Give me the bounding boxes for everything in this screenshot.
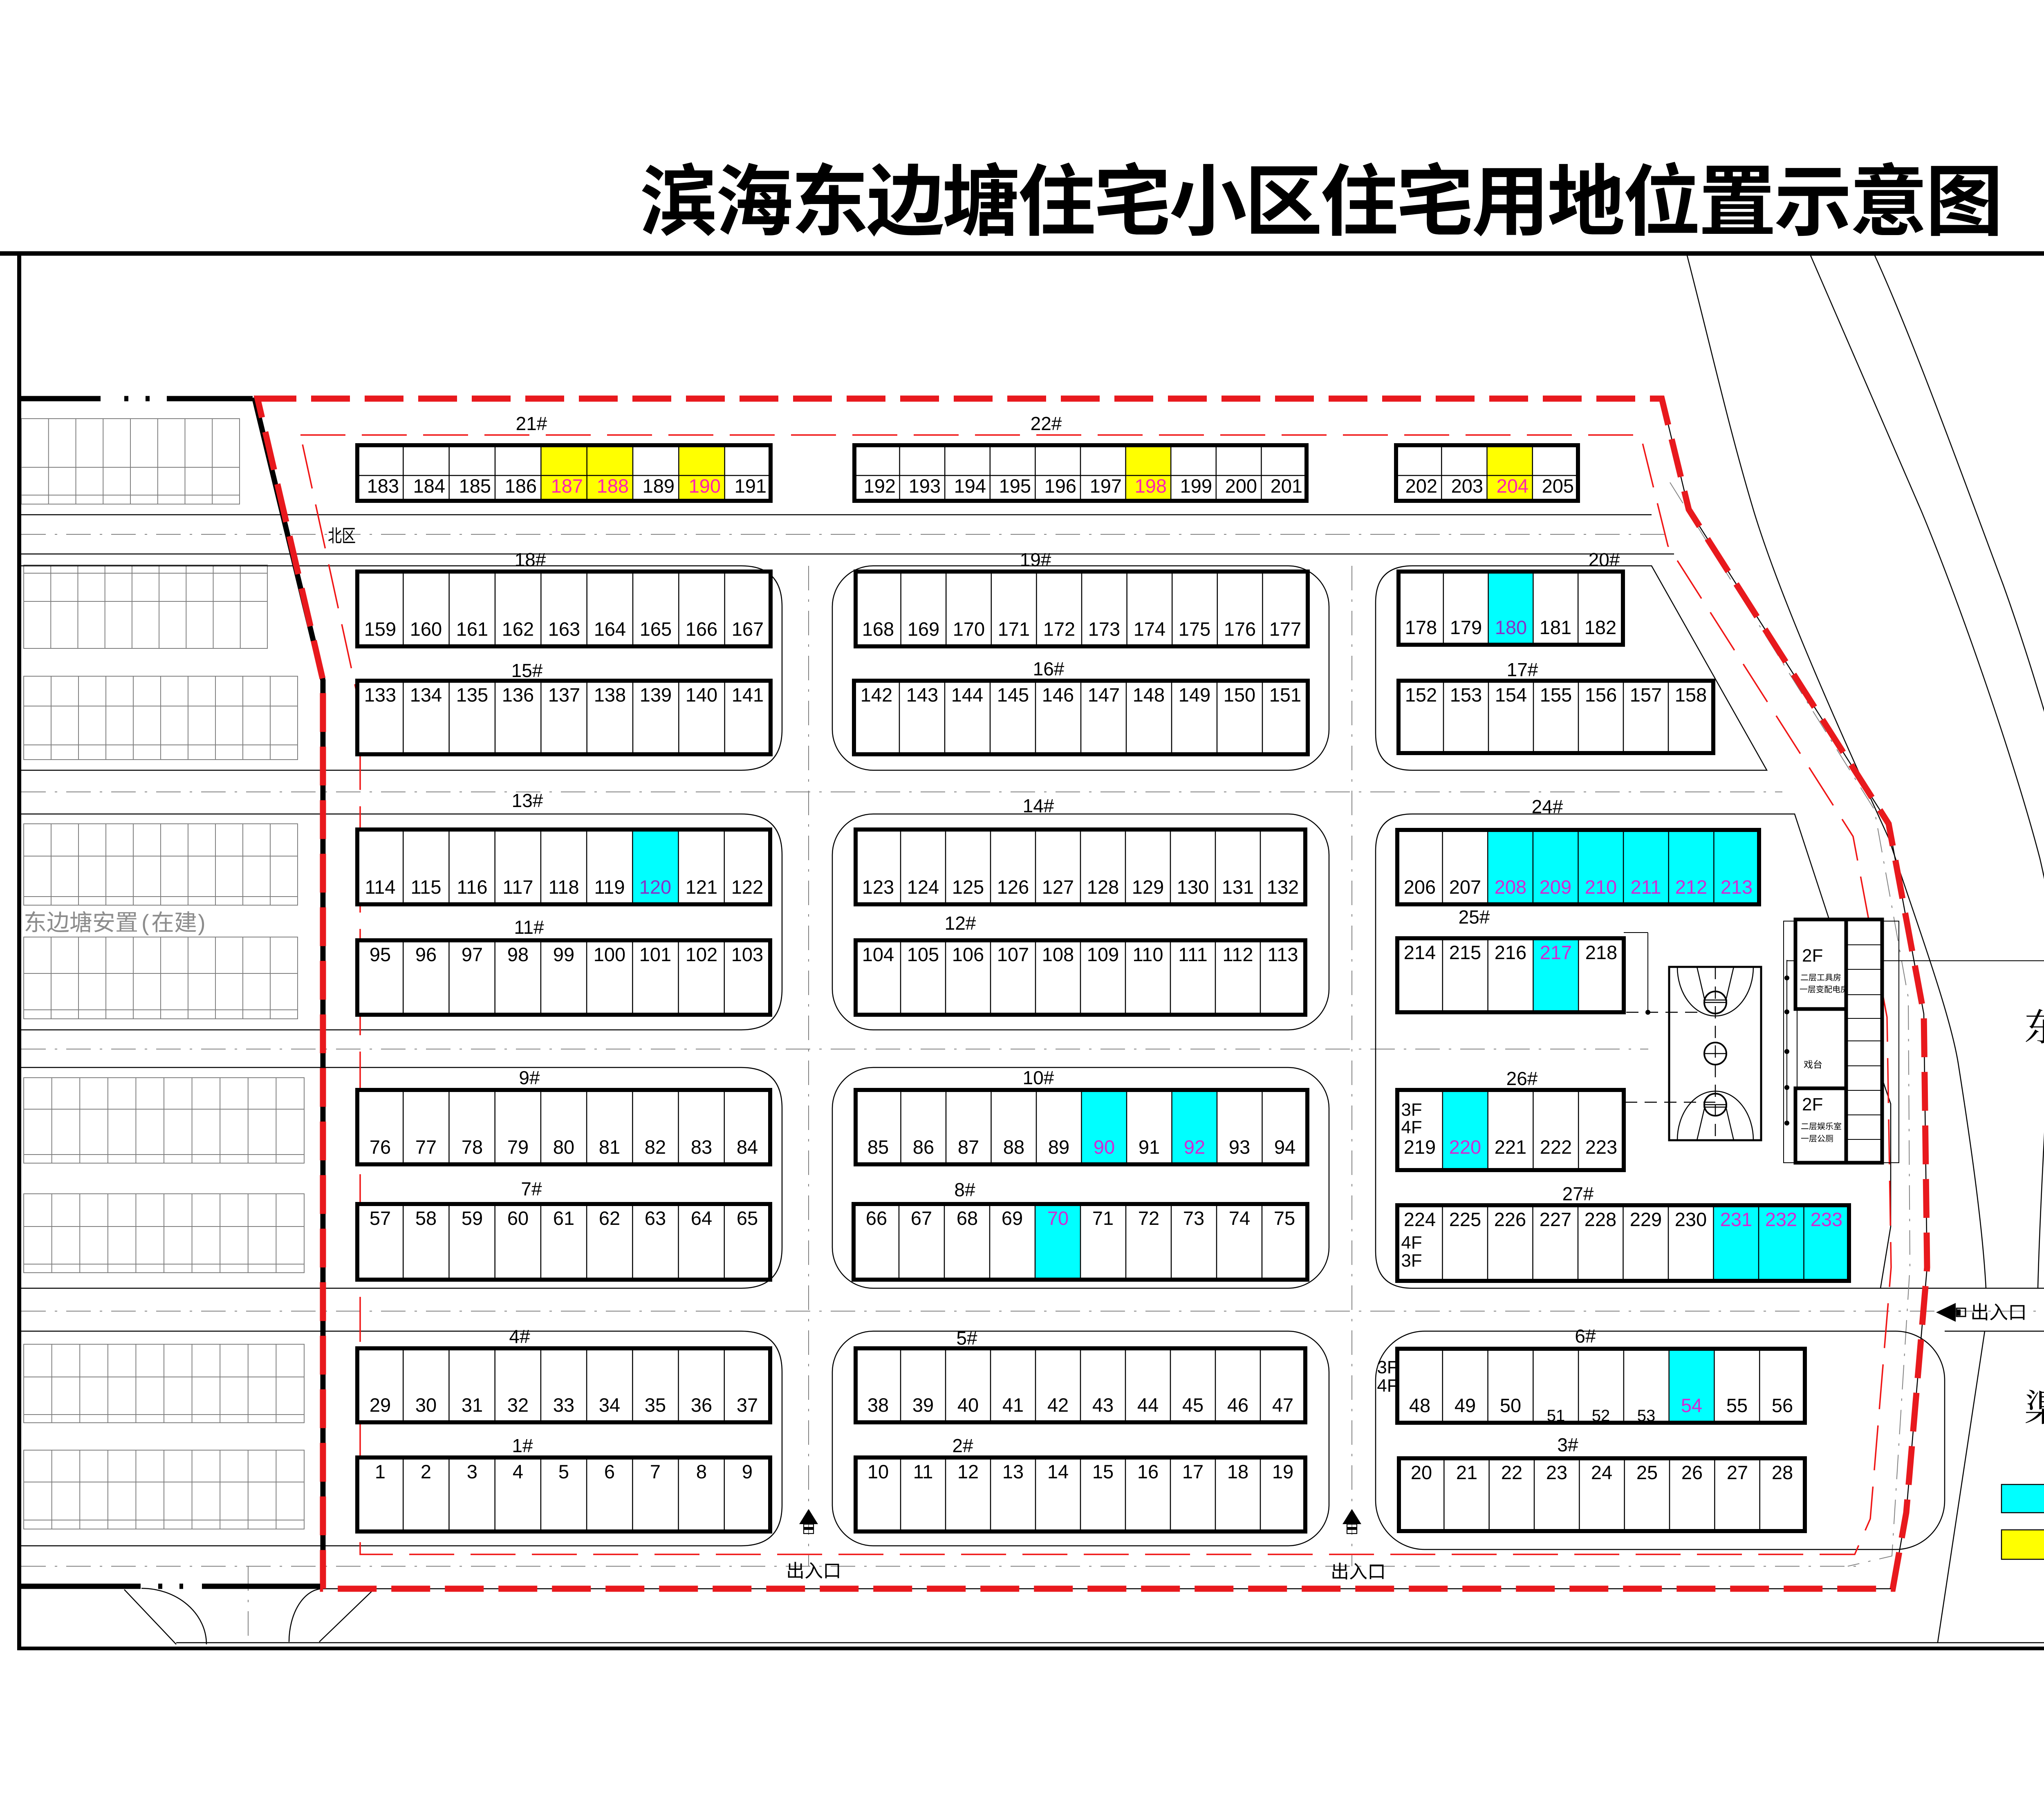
- svg-text:17: 17: [1182, 1461, 1204, 1482]
- svg-text:132: 132: [1267, 876, 1299, 898]
- svg-text:105: 105: [907, 944, 939, 965]
- svg-text:17#: 17#: [1507, 659, 1538, 680]
- svg-text:142: 142: [861, 684, 892, 706]
- svg-text:218: 218: [1585, 942, 1617, 963]
- svg-text:70: 70: [1047, 1207, 1069, 1229]
- svg-text:5: 5: [558, 1461, 569, 1482]
- svg-text:115: 115: [411, 876, 442, 898]
- svg-text:168: 168: [862, 618, 894, 640]
- svg-text:4: 4: [513, 1461, 523, 1482]
- svg-text:111: 111: [1178, 944, 1207, 965]
- svg-text:84: 84: [737, 1136, 758, 1158]
- svg-text:15#: 15#: [511, 660, 543, 681]
- svg-text:155: 155: [1540, 684, 1572, 706]
- svg-text:21: 21: [1456, 1462, 1477, 1483]
- svg-text:149: 149: [1179, 684, 1210, 706]
- svg-text:197: 197: [1090, 475, 1122, 497]
- svg-text:(: (: [141, 910, 149, 935]
- svg-text:180: 180: [1495, 617, 1527, 638]
- svg-text:16: 16: [1137, 1461, 1159, 1482]
- svg-text:88: 88: [1003, 1136, 1024, 1158]
- svg-text:165: 165: [640, 618, 672, 640]
- svg-text:62: 62: [599, 1207, 620, 1229]
- svg-text:204: 204: [1497, 475, 1529, 497]
- svg-text:167: 167: [732, 618, 764, 640]
- svg-text:26: 26: [1681, 1462, 1703, 1483]
- svg-text:213: 213: [1721, 876, 1753, 898]
- svg-text:8#: 8#: [954, 1179, 975, 1200]
- svg-text:219: 219: [1404, 1136, 1436, 1158]
- svg-text:87: 87: [958, 1136, 979, 1158]
- svg-text:145: 145: [997, 684, 1029, 706]
- svg-text:198: 198: [1135, 475, 1167, 497]
- svg-text:191: 191: [735, 475, 766, 497]
- svg-text:31: 31: [462, 1394, 483, 1416]
- svg-text:158: 158: [1675, 684, 1707, 706]
- svg-text:150: 150: [1224, 684, 1255, 706]
- svg-text:209: 209: [1540, 876, 1571, 898]
- svg-text:172: 172: [1043, 618, 1075, 640]
- svg-text:161: 161: [456, 618, 488, 640]
- svg-text:211: 211: [1631, 876, 1661, 898]
- svg-text:12#: 12#: [945, 913, 976, 934]
- svg-text:2F: 2F: [1802, 1094, 1823, 1114]
- svg-text:227: 227: [1540, 1209, 1571, 1230]
- svg-text:52: 52: [1592, 1407, 1610, 1425]
- svg-text:120: 120: [639, 876, 671, 898]
- svg-text:127: 127: [1042, 876, 1074, 898]
- svg-text:154: 154: [1495, 684, 1527, 706]
- svg-text:186: 186: [505, 475, 537, 497]
- svg-text:112: 112: [1223, 944, 1253, 965]
- svg-text:47: 47: [1272, 1394, 1293, 1416]
- svg-text:118: 118: [549, 876, 579, 898]
- svg-text:124: 124: [907, 876, 939, 898]
- svg-text:207: 207: [1449, 876, 1481, 898]
- svg-text:173: 173: [1088, 618, 1120, 640]
- svg-text:139: 139: [640, 684, 672, 706]
- svg-text:189: 189: [643, 475, 675, 497]
- svg-text:45: 45: [1182, 1394, 1204, 1416]
- svg-text:202: 202: [1405, 475, 1437, 497]
- svg-text:233: 233: [1811, 1209, 1842, 1230]
- svg-text:3: 3: [467, 1461, 477, 1482]
- svg-text:10#: 10#: [1023, 1067, 1054, 1088]
- svg-text:116: 116: [457, 876, 488, 898]
- svg-text:25#: 25#: [1459, 906, 1490, 928]
- svg-text:200: 200: [1225, 475, 1257, 497]
- svg-text:178: 178: [1405, 617, 1437, 638]
- svg-text:133: 133: [364, 684, 396, 706]
- svg-text:77: 77: [415, 1136, 437, 1158]
- svg-text:11#: 11#: [514, 917, 544, 938]
- svg-text:122: 122: [731, 876, 763, 898]
- svg-text:80: 80: [553, 1136, 574, 1158]
- svg-text:69: 69: [1002, 1207, 1023, 1229]
- svg-text:176: 176: [1224, 618, 1256, 640]
- svg-text:171: 171: [998, 618, 1030, 640]
- svg-text:75: 75: [1274, 1207, 1295, 1229]
- svg-text:19: 19: [1272, 1461, 1293, 1482]
- svg-text:107: 107: [997, 944, 1029, 965]
- svg-text:129: 129: [1132, 876, 1164, 898]
- svg-text:27: 27: [1727, 1462, 1748, 1483]
- svg-text:126: 126: [997, 876, 1029, 898]
- svg-text:46: 46: [1227, 1394, 1248, 1416]
- svg-text:56: 56: [1772, 1395, 1793, 1416]
- svg-text:128: 128: [1087, 876, 1119, 898]
- svg-text:14#: 14#: [1023, 795, 1054, 816]
- svg-text:188: 188: [597, 475, 629, 497]
- svg-text:28: 28: [1772, 1462, 1793, 1483]
- svg-text:148: 148: [1133, 684, 1165, 706]
- svg-text:54: 54: [1681, 1395, 1702, 1416]
- svg-text:152: 152: [1405, 684, 1437, 706]
- svg-text:15: 15: [1092, 1461, 1114, 1482]
- svg-text:221: 221: [1495, 1136, 1526, 1158]
- svg-text:121: 121: [686, 876, 717, 898]
- svg-text:12: 12: [957, 1461, 979, 1482]
- svg-text:86: 86: [913, 1136, 934, 1158]
- svg-text:108: 108: [1042, 944, 1074, 965]
- svg-text:100: 100: [594, 944, 625, 965]
- svg-text:146: 146: [1042, 684, 1074, 706]
- svg-text:13: 13: [1002, 1461, 1024, 1482]
- svg-text:193: 193: [909, 475, 941, 497]
- svg-text:151: 151: [1269, 684, 1301, 706]
- svg-text:101: 101: [639, 944, 671, 965]
- svg-text:34: 34: [599, 1394, 620, 1416]
- svg-text:97: 97: [462, 944, 483, 965]
- svg-text:160: 160: [410, 618, 442, 640]
- svg-text:42: 42: [1047, 1394, 1069, 1416]
- svg-text:159: 159: [364, 618, 396, 640]
- svg-text:24#: 24#: [1532, 796, 1563, 817]
- svg-text:39: 39: [912, 1394, 934, 1416]
- svg-text:20: 20: [1411, 1462, 1432, 1483]
- svg-text:117: 117: [503, 876, 533, 898]
- svg-text:185: 185: [459, 475, 491, 497]
- svg-text:125: 125: [952, 876, 984, 898]
- svg-text:61: 61: [553, 1207, 574, 1229]
- svg-text:64: 64: [691, 1207, 712, 1229]
- svg-text:119: 119: [594, 876, 625, 898]
- svg-text:143: 143: [906, 684, 938, 706]
- svg-text:18#: 18#: [515, 549, 546, 570]
- svg-text:174: 174: [1134, 618, 1165, 640]
- svg-text:83: 83: [691, 1136, 712, 1158]
- svg-text:55: 55: [1726, 1395, 1748, 1416]
- svg-text:179: 179: [1450, 617, 1482, 638]
- svg-text:106: 106: [952, 944, 984, 965]
- svg-text:5#: 5#: [956, 1327, 977, 1349]
- svg-text:22: 22: [1501, 1462, 1522, 1483]
- svg-text:103: 103: [731, 944, 763, 965]
- svg-text:220: 220: [1449, 1136, 1481, 1158]
- svg-text:82: 82: [645, 1136, 666, 1158]
- svg-text:1: 1: [375, 1461, 385, 1482]
- svg-text:223: 223: [1585, 1136, 1617, 1158]
- svg-text:203: 203: [1451, 475, 1483, 497]
- svg-text:11: 11: [913, 1461, 933, 1482]
- svg-text:2: 2: [421, 1461, 431, 1482]
- svg-text:217: 217: [1540, 942, 1572, 963]
- svg-text:29: 29: [370, 1394, 391, 1416]
- svg-text:104: 104: [862, 944, 894, 965]
- svg-text:19#: 19#: [1020, 549, 1051, 570]
- svg-text:99: 99: [553, 944, 574, 965]
- svg-text:110: 110: [1133, 944, 1163, 965]
- svg-text:114: 114: [365, 876, 396, 898]
- svg-text:65: 65: [737, 1207, 758, 1229]
- svg-text:1#: 1#: [512, 1435, 533, 1456]
- svg-text:141: 141: [732, 684, 764, 706]
- svg-text:201: 201: [1271, 475, 1302, 497]
- svg-text:175: 175: [1179, 618, 1210, 640]
- svg-text:76: 76: [370, 1136, 391, 1158]
- svg-text:182: 182: [1585, 617, 1616, 638]
- svg-text:144: 144: [951, 684, 983, 706]
- svg-text:25: 25: [1636, 1462, 1658, 1483]
- svg-text:49: 49: [1455, 1395, 1476, 1416]
- svg-text:63: 63: [645, 1207, 666, 1229]
- svg-text:224: 224: [1404, 1209, 1436, 1230]
- svg-text:113: 113: [1268, 944, 1298, 965]
- svg-text:134: 134: [410, 684, 442, 706]
- svg-text:23: 23: [1546, 1462, 1567, 1483]
- svg-text:187: 187: [551, 475, 583, 497]
- svg-text:13#: 13#: [512, 790, 543, 811]
- svg-text:93: 93: [1229, 1136, 1250, 1158]
- svg-text:232: 232: [1765, 1209, 1797, 1230]
- svg-text:68: 68: [957, 1207, 978, 1229]
- svg-text:194: 194: [954, 475, 986, 497]
- svg-text:24: 24: [1591, 1462, 1612, 1483]
- svg-text:22#: 22#: [1031, 413, 1062, 434]
- svg-text:162: 162: [502, 618, 534, 640]
- svg-text:18: 18: [1227, 1461, 1248, 1482]
- svg-text:230: 230: [1675, 1209, 1707, 1230]
- svg-text:95: 95: [370, 944, 391, 965]
- svg-text:192: 192: [864, 475, 896, 497]
- svg-text:59: 59: [462, 1207, 483, 1229]
- svg-text:135: 135: [456, 684, 488, 706]
- svg-text:27#: 27#: [1562, 1183, 1594, 1204]
- svg-text:136: 136: [502, 684, 534, 706]
- svg-text:73: 73: [1183, 1207, 1204, 1229]
- svg-text:67: 67: [911, 1207, 932, 1229]
- svg-text:4F: 4F: [1401, 1233, 1422, 1253]
- svg-text:10: 10: [867, 1461, 889, 1482]
- svg-text:4#: 4#: [509, 1326, 530, 1347]
- svg-text:222: 222: [1540, 1136, 1572, 1158]
- svg-text:57: 57: [370, 1207, 391, 1229]
- svg-text:38: 38: [867, 1394, 889, 1416]
- svg-text:32: 32: [507, 1394, 529, 1416]
- svg-text:225: 225: [1449, 1209, 1481, 1230]
- svg-text:79: 79: [507, 1136, 529, 1158]
- svg-text:205: 205: [1542, 475, 1574, 497]
- svg-text:226: 226: [1494, 1209, 1526, 1230]
- svg-text:206: 206: [1404, 876, 1436, 898]
- svg-text:90: 90: [1094, 1136, 1115, 1158]
- svg-text:78: 78: [462, 1136, 483, 1158]
- svg-text:26#: 26#: [1506, 1068, 1538, 1089]
- svg-text:60: 60: [507, 1207, 529, 1229]
- svg-text:4F: 4F: [1377, 1376, 1398, 1396]
- svg-text:2F: 2F: [1802, 946, 1823, 966]
- svg-text:7: 7: [650, 1461, 661, 1482]
- svg-text:6: 6: [604, 1461, 615, 1482]
- svg-text:51: 51: [1547, 1407, 1565, 1425]
- svg-text:37: 37: [737, 1394, 758, 1416]
- svg-text:212: 212: [1675, 876, 1707, 898]
- svg-text:228: 228: [1585, 1209, 1616, 1230]
- svg-text:109: 109: [1087, 944, 1119, 965]
- svg-text:196: 196: [1044, 475, 1076, 497]
- svg-text:231: 231: [1720, 1209, 1752, 1230]
- svg-text:181: 181: [1540, 617, 1571, 638]
- svg-text:3F: 3F: [1377, 1357, 1398, 1377]
- svg-text:177: 177: [1269, 618, 1301, 640]
- svg-text:50: 50: [1500, 1395, 1521, 1416]
- svg-text:2#: 2#: [952, 1435, 973, 1456]
- svg-text:3F: 3F: [1401, 1100, 1422, 1120]
- svg-text:98: 98: [507, 944, 529, 965]
- svg-text:): ): [198, 910, 206, 935]
- svg-text:9#: 9#: [519, 1067, 540, 1088]
- svg-text:6#: 6#: [1575, 1325, 1596, 1347]
- svg-text:190: 190: [689, 475, 721, 497]
- svg-text:58: 58: [415, 1207, 437, 1229]
- svg-text:81: 81: [599, 1136, 620, 1158]
- svg-text:9: 9: [742, 1461, 753, 1482]
- svg-text:183: 183: [367, 475, 399, 497]
- svg-text:72: 72: [1138, 1207, 1159, 1229]
- svg-text:214: 214: [1404, 942, 1436, 963]
- svg-text:140: 140: [686, 684, 717, 706]
- svg-text:36: 36: [691, 1394, 712, 1416]
- svg-text:169: 169: [908, 618, 939, 640]
- svg-text:4F: 4F: [1401, 1117, 1422, 1137]
- svg-text:35: 35: [645, 1394, 666, 1416]
- svg-text:8: 8: [696, 1461, 707, 1482]
- svg-text:166: 166: [686, 618, 717, 640]
- svg-text:210: 210: [1585, 876, 1617, 898]
- svg-text:20#: 20#: [1589, 549, 1620, 570]
- svg-text:157: 157: [1630, 684, 1662, 706]
- svg-text:40: 40: [957, 1394, 979, 1416]
- svg-text:195: 195: [999, 475, 1031, 497]
- svg-text:215: 215: [1449, 942, 1481, 963]
- svg-text:130: 130: [1177, 876, 1209, 898]
- svg-text:33: 33: [553, 1394, 574, 1416]
- svg-text:44: 44: [1137, 1394, 1159, 1416]
- svg-text:66: 66: [866, 1207, 887, 1229]
- svg-text:14: 14: [1047, 1461, 1069, 1482]
- svg-text:85: 85: [867, 1136, 889, 1158]
- svg-text:91: 91: [1139, 1136, 1160, 1158]
- svg-text:164: 164: [594, 618, 626, 640]
- svg-text:208: 208: [1495, 876, 1526, 898]
- svg-text:43: 43: [1092, 1394, 1114, 1416]
- svg-text:21#: 21#: [516, 413, 547, 434]
- svg-text:7#: 7#: [521, 1178, 542, 1200]
- svg-text:71: 71: [1092, 1207, 1114, 1229]
- svg-text:163: 163: [548, 618, 580, 640]
- svg-text:216: 216: [1495, 942, 1526, 963]
- svg-text:137: 137: [548, 684, 580, 706]
- svg-text:96: 96: [415, 944, 437, 965]
- svg-text:184: 184: [413, 475, 445, 497]
- svg-text:147: 147: [1088, 684, 1120, 706]
- svg-text:94: 94: [1274, 1136, 1295, 1158]
- svg-text:30: 30: [415, 1394, 437, 1416]
- svg-text:92: 92: [1184, 1136, 1205, 1158]
- svg-text:170: 170: [953, 618, 985, 640]
- svg-text:229: 229: [1630, 1209, 1662, 1230]
- svg-text:131: 131: [1222, 876, 1254, 898]
- svg-text:89: 89: [1048, 1136, 1069, 1158]
- svg-text:74: 74: [1229, 1207, 1250, 1229]
- svg-text:53: 53: [1637, 1407, 1656, 1425]
- svg-text:3#: 3#: [1557, 1434, 1578, 1455]
- svg-text:199: 199: [1180, 475, 1212, 497]
- svg-text:123: 123: [862, 876, 894, 898]
- svg-text:16#: 16#: [1033, 658, 1065, 679]
- svg-text:48: 48: [1409, 1395, 1430, 1416]
- svg-text:102: 102: [686, 944, 717, 965]
- svg-text:3F: 3F: [1401, 1251, 1422, 1271]
- svg-text:153: 153: [1450, 684, 1482, 706]
- svg-text:41: 41: [1002, 1394, 1024, 1416]
- svg-text:156: 156: [1585, 684, 1617, 706]
- svg-text:138: 138: [594, 684, 626, 706]
